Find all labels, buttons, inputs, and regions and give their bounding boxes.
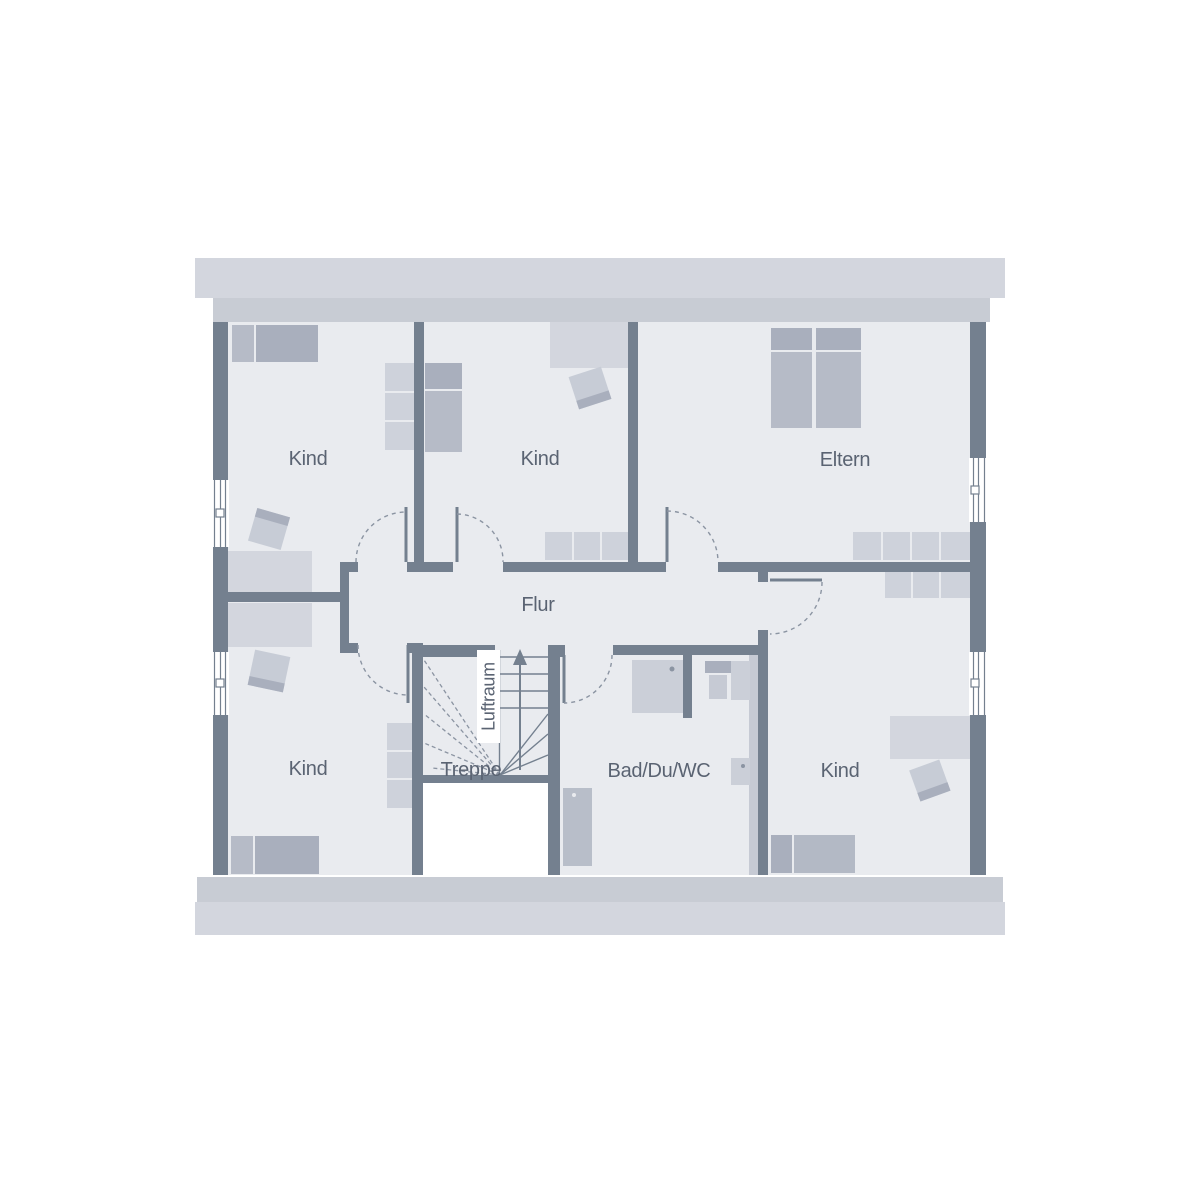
window: [212, 652, 229, 715]
wardrobe: [885, 572, 970, 598]
bed-pillow: [231, 836, 253, 874]
bed-pillow: [425, 363, 462, 389]
stairwell-east-wall: [548, 645, 560, 875]
wall-plate-top: [213, 298, 990, 322]
bed-mattress: [425, 391, 462, 452]
label-treppe: Treppe: [441, 759, 502, 781]
label-kind-top-middle: Kind: [521, 448, 560, 470]
window: [212, 480, 229, 547]
wall-kind-left-divider: [213, 592, 345, 602]
bath-north-wall: [613, 645, 768, 655]
bath-installation-wall: [749, 655, 758, 875]
bed-mattress: [255, 836, 319, 874]
shower: [632, 660, 683, 713]
window: [969, 458, 987, 522]
label-kind-top-left: Kind: [289, 448, 328, 470]
corridor-north-wall-2: [503, 562, 666, 572]
wardrobe: [545, 532, 628, 560]
wardrobe: [385, 363, 414, 450]
roof-band-top: [195, 258, 1005, 298]
chair: [248, 650, 291, 693]
bath-partition-wall: [683, 655, 692, 718]
bed-pillow: [771, 835, 792, 873]
bathtub: [563, 788, 592, 866]
label-flur: Flur: [521, 594, 555, 616]
wall-plate-bottom: [197, 877, 1003, 902]
desk: [550, 322, 628, 368]
bath-cabinet: [731, 661, 750, 700]
bed-mattress: [794, 835, 855, 873]
wall-divider-base: [407, 562, 453, 572]
double-bed: [771, 328, 861, 428]
label-kind-bottom-right: Kind: [821, 760, 860, 782]
label-kind-bottom-left: Kind: [289, 758, 328, 780]
stair-void: [423, 783, 548, 877]
desk: [228, 551, 312, 592]
bed-pillow: [232, 325, 254, 362]
corridor-west-wall: [340, 562, 349, 653]
bath-east-wall: [758, 630, 768, 875]
bed-mattress: [256, 325, 318, 362]
wall-kind2-eltern: [628, 322, 638, 562]
label-eltern: Eltern: [820, 449, 870, 471]
luftraum-label: Luftraum: [479, 662, 499, 731]
floor-plan: Luftraum Kind Kind Elter: [0, 0, 1200, 1200]
corridor-north-wall-3: [718, 562, 970, 572]
desk: [890, 716, 970, 759]
wall-kind1-kind2: [414, 322, 424, 562]
corridor-south-wall-1: [340, 643, 358, 653]
bath-east-wall-stub: [758, 572, 768, 582]
window: [969, 652, 987, 715]
wardrobe: [853, 532, 970, 560]
desk: [228, 603, 312, 647]
stairwell-west-wall: [412, 645, 423, 875]
label-bad: Bad/Du/WC: [608, 760, 711, 782]
wardrobe: [387, 723, 412, 808]
stairwell-top-stub: [548, 645, 565, 657]
washbasin: [731, 758, 750, 785]
roof-band-bottom: [195, 902, 1005, 935]
exterior-wall-right: [970, 322, 986, 875]
floor-plan-canvas: Luftraum Kind Kind Elter: [0, 0, 1200, 1200]
